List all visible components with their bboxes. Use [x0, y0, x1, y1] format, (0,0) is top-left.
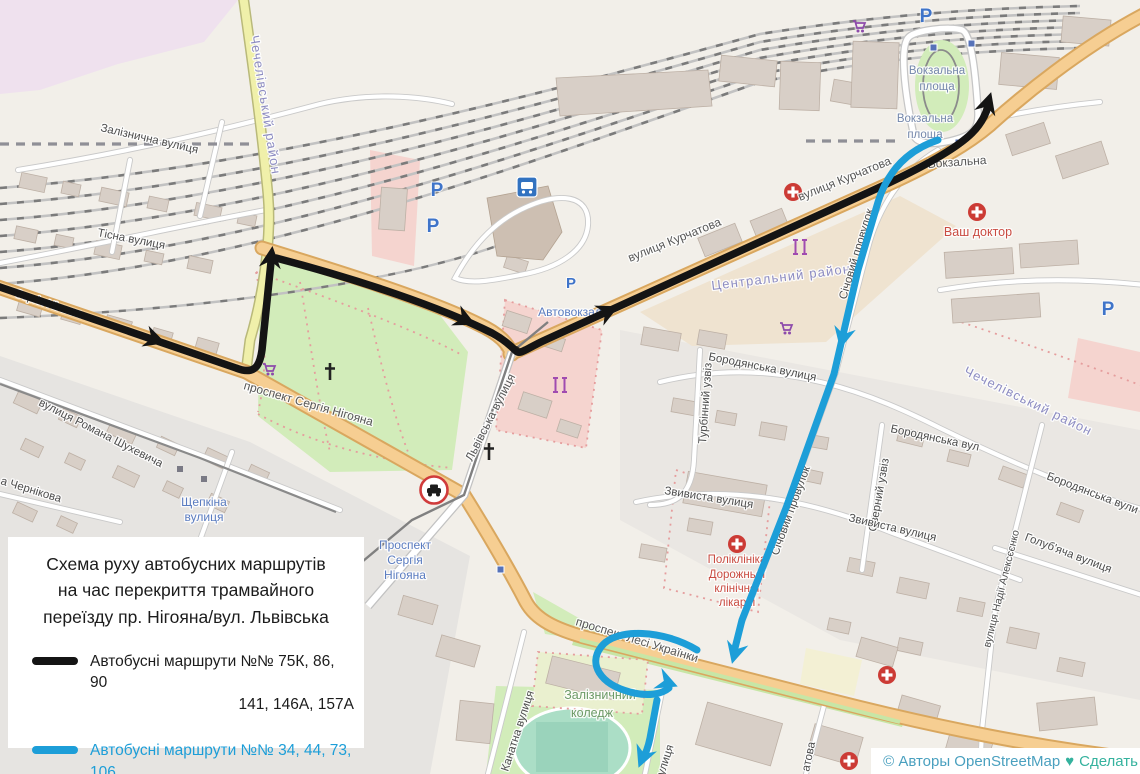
- stop-label-shchepkina: Щепкіна: [181, 495, 227, 509]
- legend-item-black-routes: Автобусні маршрути №№ 75К, 86, 90 141, 1…: [18, 651, 354, 716]
- stop-label-shchepkina: вулиця: [185, 510, 224, 524]
- poi-label-poliklinika: Поліклініка: [708, 554, 767, 566]
- parking-icon: P: [1102, 299, 1115, 320]
- legend-black-label-2: 141, 146А, 157А: [90, 694, 354, 716]
- poi-label-koledzh: коледж: [571, 706, 614, 720]
- place-label-vokzalna-ploshcha-2: Вокзальна: [897, 113, 954, 125]
- parking-icon: P: [566, 275, 576, 292]
- heart-icon: ♥: [1065, 753, 1074, 770]
- place-label-vokzalna-ploshcha-1: Вокзальна: [909, 65, 966, 77]
- black-route-swatch: [32, 657, 78, 665]
- church-cross-icon: [484, 443, 494, 460]
- poi-label-vash-doktor: Ваш доктор: [944, 225, 1012, 239]
- parking-icon: P: [427, 216, 440, 237]
- bus-station-icon: [517, 177, 537, 197]
- tram-stop-marker: [930, 44, 937, 51]
- no-car-sign-icon: [421, 477, 448, 504]
- blue-route-swatch: [32, 746, 78, 754]
- tram-stop-marker: [177, 466, 183, 472]
- map-scheme: P P P P P: [0, 0, 1140, 774]
- tram-stop-marker: [201, 476, 207, 482]
- hospital-icon: [728, 535, 746, 553]
- legend-blue-label: Автобусні маршрути №№ 34, 44, 73, 106: [90, 740, 354, 774]
- attribution-link[interactable]: Сделать: [1079, 753, 1138, 770]
- parking-icon: P: [920, 6, 933, 27]
- map-attribution: © Авторы OpenStreetMap ♥ Сделать: [871, 748, 1140, 774]
- legend-item-blue-routes: Автобусні маршрути №№ 34, 44, 73, 106: [18, 740, 354, 774]
- place-label-vokzalna-ploshcha-1: площа: [919, 81, 955, 93]
- hospital-icon: [840, 752, 858, 770]
- hospital-icon: [968, 203, 986, 221]
- parking-icon: P: [431, 180, 444, 201]
- legend-panel: Схема руху автобусних маршрутів на час п…: [8, 537, 364, 748]
- tram-stop-marker: [968, 40, 975, 47]
- hospital-icon: [878, 666, 896, 684]
- street-label-partial-atova: атова: [800, 740, 818, 772]
- legend-title: Схема руху автобусних маршрутів на час п…: [18, 551, 354, 630]
- stop-label-prospekt-nihoyana: Сергія: [387, 553, 423, 567]
- stop-label-prospekt-nihoyana: Нігояна: [384, 568, 426, 582]
- legend-black-label: Автобусні маршрути №№ 75К, 86, 90: [90, 651, 354, 694]
- stop-label-prospekt-nihoyana: Проспект: [379, 538, 432, 552]
- tram-stop-marker: [497, 566, 504, 573]
- attribution-copyright[interactable]: © Авторы OpenStreetMap: [883, 753, 1060, 770]
